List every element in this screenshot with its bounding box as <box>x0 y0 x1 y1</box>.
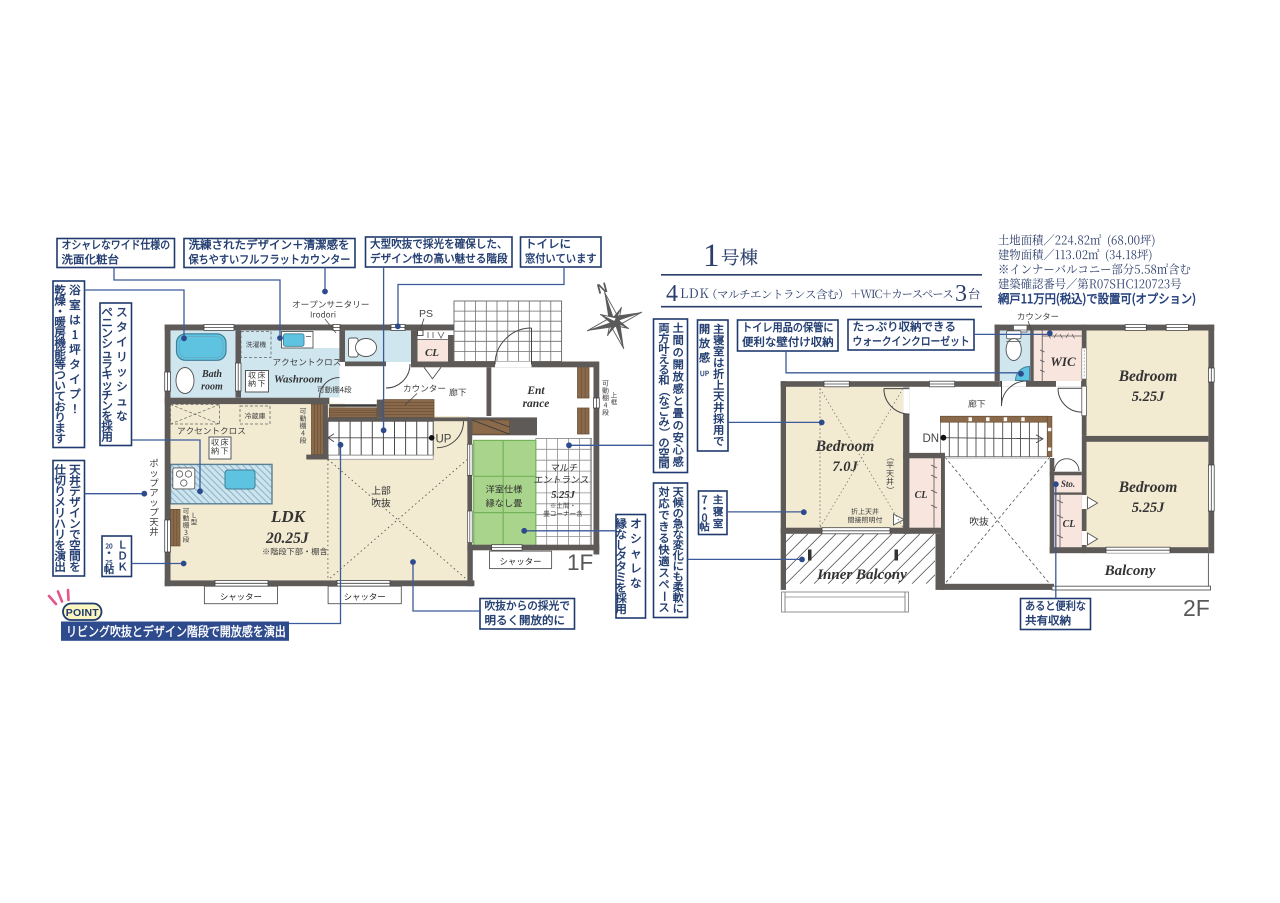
svg-text:Inner Balcony: Inner Balcony <box>816 567 907 583</box>
svg-text:Sto.: Sto. <box>1061 479 1075 489</box>
svg-text:5.25J: 5.25J <box>1132 389 1165 405</box>
svg-text:Ent: Ent <box>526 385 545 397</box>
svg-text:Bedroom: Bedroom <box>815 438 875 455</box>
svg-text:CL: CL <box>425 347 439 359</box>
svg-text:5.25J: 5.25J <box>551 490 575 501</box>
svg-text:Washroom: Washroom <box>274 374 323 386</box>
svg-text:POINT: POINT <box>66 607 99 619</box>
svg-text:Balcony: Balcony <box>1104 563 1156 579</box>
svg-text:CL: CL <box>915 490 928 501</box>
svg-text:LDK: LDK <box>270 507 307 526</box>
svg-text:DN: DN <box>923 433 940 445</box>
svg-text:PS: PS <box>419 308 433 320</box>
svg-text:Bath: Bath <box>201 369 222 380</box>
svg-text:Bedroom: Bedroom <box>1118 479 1178 496</box>
svg-text:3: 3 <box>955 281 967 307</box>
svg-text:7.0J: 7.0J <box>832 459 858 475</box>
svg-text:Bedroom: Bedroom <box>1118 368 1178 385</box>
svg-text:WIC: WIC <box>1050 354 1076 369</box>
svg-text:20.25J: 20.25J <box>265 530 310 547</box>
svg-text:2F: 2F <box>1183 595 1210 621</box>
svg-text:1: 1 <box>703 238 720 274</box>
svg-text:4: 4 <box>666 281 678 307</box>
svg-text:5.25J: 5.25J <box>1132 500 1165 516</box>
svg-text:room: room <box>201 382 223 393</box>
svg-text:UP: UP <box>436 434 452 446</box>
svg-text:CL: CL <box>1063 519 1076 530</box>
svg-text:rance: rance <box>523 398 550 410</box>
svg-text:1F: 1F <box>567 550 593 575</box>
